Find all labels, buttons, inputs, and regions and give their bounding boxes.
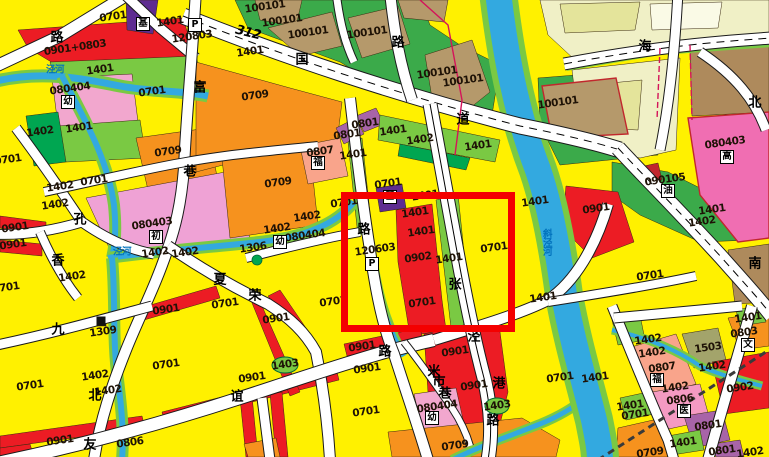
road-name-char: 路	[391, 37, 404, 50]
parcel-code-label: 0801	[708, 444, 736, 457]
road-name-char: 富	[193, 82, 206, 95]
gas-station-icon: 油	[661, 184, 675, 198]
parcel-code-label: 0709	[636, 446, 664, 457]
road-name-char: 巷	[183, 166, 196, 179]
parcel-code-label: 1402	[736, 446, 764, 457]
road-name-char: 南	[748, 258, 761, 271]
road-name-char: 友	[83, 439, 96, 452]
road-name-char: 北	[88, 390, 101, 403]
kindergarten-icon: 幼	[273, 235, 287, 249]
road-name-char: 夏	[213, 274, 226, 287]
road-name-char: 道	[456, 114, 469, 127]
cultural-icon: 文	[741, 338, 755, 352]
road-name-char: 路	[486, 415, 499, 428]
river-label: 泾河	[46, 65, 64, 75]
river-label: 泾河	[113, 247, 131, 257]
road-name-char: 国	[295, 54, 308, 67]
pump-station-icon	[97, 317, 106, 326]
kindergarten-icon: 幼	[425, 411, 439, 425]
road-name-char: 九	[51, 324, 64, 337]
road-name-char: 路	[378, 346, 391, 359]
highlight-annotation-box	[341, 192, 515, 332]
road-name-char: 海	[638, 41, 651, 54]
hospital-icon: 医	[677, 404, 691, 418]
river-label: 斜泾河	[541, 229, 551, 256]
welfare-icon: 福	[311, 156, 325, 170]
road-name-char: 路	[50, 32, 63, 45]
road-name-char: 荣	[248, 290, 261, 303]
road-name-char: 巷	[438, 388, 451, 401]
welfare-icon: 福	[650, 373, 664, 387]
high-school-icon: 高	[720, 150, 734, 164]
zoning-map: 0701070107010701070107010701070107010701…	[0, 0, 769, 457]
road-name-char: 香	[51, 255, 64, 268]
junior-high-school-icon: 初	[149, 230, 163, 244]
road-name-char: 泾	[467, 331, 480, 344]
road-name-char: 孔	[73, 214, 86, 227]
road-name-char: 谊	[230, 391, 243, 404]
church-icon: 基	[136, 17, 150, 31]
parking-icon: P	[188, 18, 202, 32]
kindergarten-icon: 幼	[61, 95, 75, 109]
road-name-char: 北	[748, 97, 761, 110]
road-name-char: 港	[492, 378, 505, 391]
